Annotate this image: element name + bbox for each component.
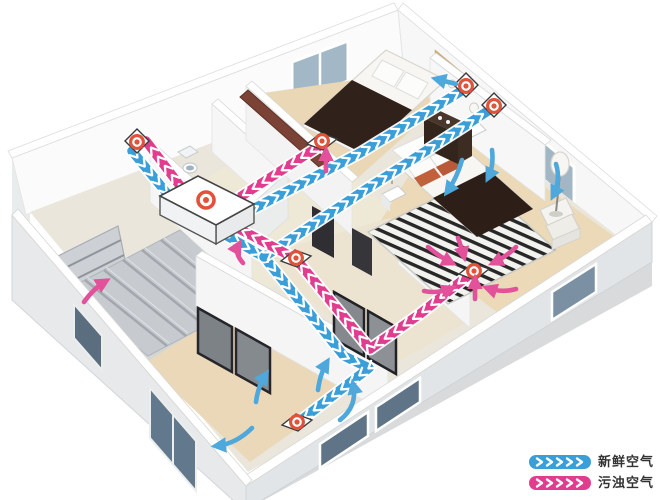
legend: 新鲜空气 污浊空气 — [529, 455, 654, 490]
legend-label-exhaust-air: 污浊空气 — [598, 477, 654, 490]
ventilation-diagram: 新鲜空气 污浊空气 — [0, 0, 660, 500]
legend-label-fresh-air: 新鲜空气 — [598, 456, 654, 469]
chevron-row-icon — [529, 455, 591, 469]
legend-item-exhaust-air: 污浊空气 — [529, 476, 654, 490]
floorplan-illustration — [0, 0, 660, 500]
fresh-air-duct-swatch — [529, 455, 591, 469]
legend-item-fresh-air: 新鲜空气 — [529, 455, 654, 469]
chevron-row-icon — [529, 476, 591, 490]
exhaust-air-duct-swatch — [529, 476, 591, 490]
